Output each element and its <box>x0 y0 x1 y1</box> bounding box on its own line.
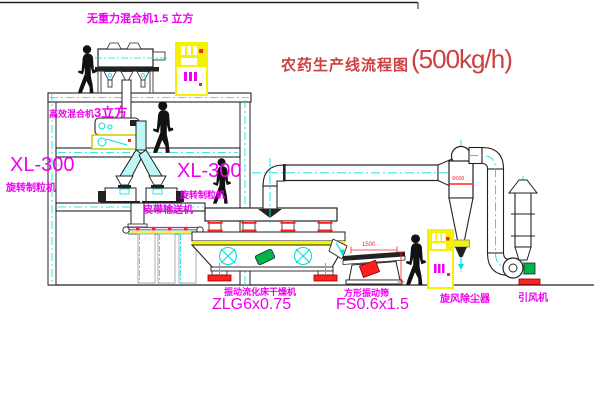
belt-conveyor <box>123 227 203 234</box>
label-granulator-name-left: 旋转制粒机 <box>6 184 56 194</box>
label-dryer-model: ZLG6x0.75 <box>212 297 291 313</box>
frame-edge-line <box>0 3 418 10</box>
person-roof <box>78 45 97 93</box>
cabinet-display-marks <box>184 72 197 81</box>
page-title: 农药生产线流程图 (500kg/h) <box>281 44 512 75</box>
high-efficiency-mixer <box>92 118 140 149</box>
control-cabinet-right <box>428 230 453 288</box>
person-floor3 <box>153 101 174 153</box>
person-ground <box>406 234 426 285</box>
granulator-left <box>98 176 140 204</box>
title-capacity: (500kg/h) <box>411 44 512 75</box>
control-cabinet-top <box>176 43 207 95</box>
process-flow-diagram: 农药生产线流程图 (500kg/h) 无重力混合机1.5 立方 高效混合机3立方… <box>0 0 600 403</box>
label-granulator-model-right: XL-300 <box>177 161 242 181</box>
title-chinese: 农药生产线流程图 <box>281 54 409 75</box>
label-high-mixer-name: 高效混合机 <box>49 109 94 119</box>
cabinet-display-marks <box>434 264 445 273</box>
dimension-text-1500: 1500 <box>362 242 375 248</box>
label-fan: 引风机 <box>518 294 548 304</box>
label-granulator-name-right: 旋转制粒机 <box>180 191 225 200</box>
label-cyclone: 旋风除尘器 <box>440 295 490 305</box>
induced-draft-fan <box>503 258 540 285</box>
outlet-pipe <box>469 148 510 276</box>
conveyor-legs <box>138 234 196 283</box>
label-granulator-model-left: XL-300 <box>10 155 75 175</box>
label-sieve-model: FS0.6x1.5 <box>336 297 409 313</box>
label-belt-conveyor: 皮带输送机 <box>143 206 193 216</box>
fluid-bed-dryer <box>192 208 345 281</box>
label-gravity-mixer: 无重力混合机1.5 立方 <box>87 14 193 25</box>
label-high-efficiency-mixer: 高效混合机3立方 <box>49 105 127 121</box>
dimension-text-600: Φ600 <box>452 177 464 182</box>
label-high-mixer-size: 3立方 <box>94 105 127 120</box>
